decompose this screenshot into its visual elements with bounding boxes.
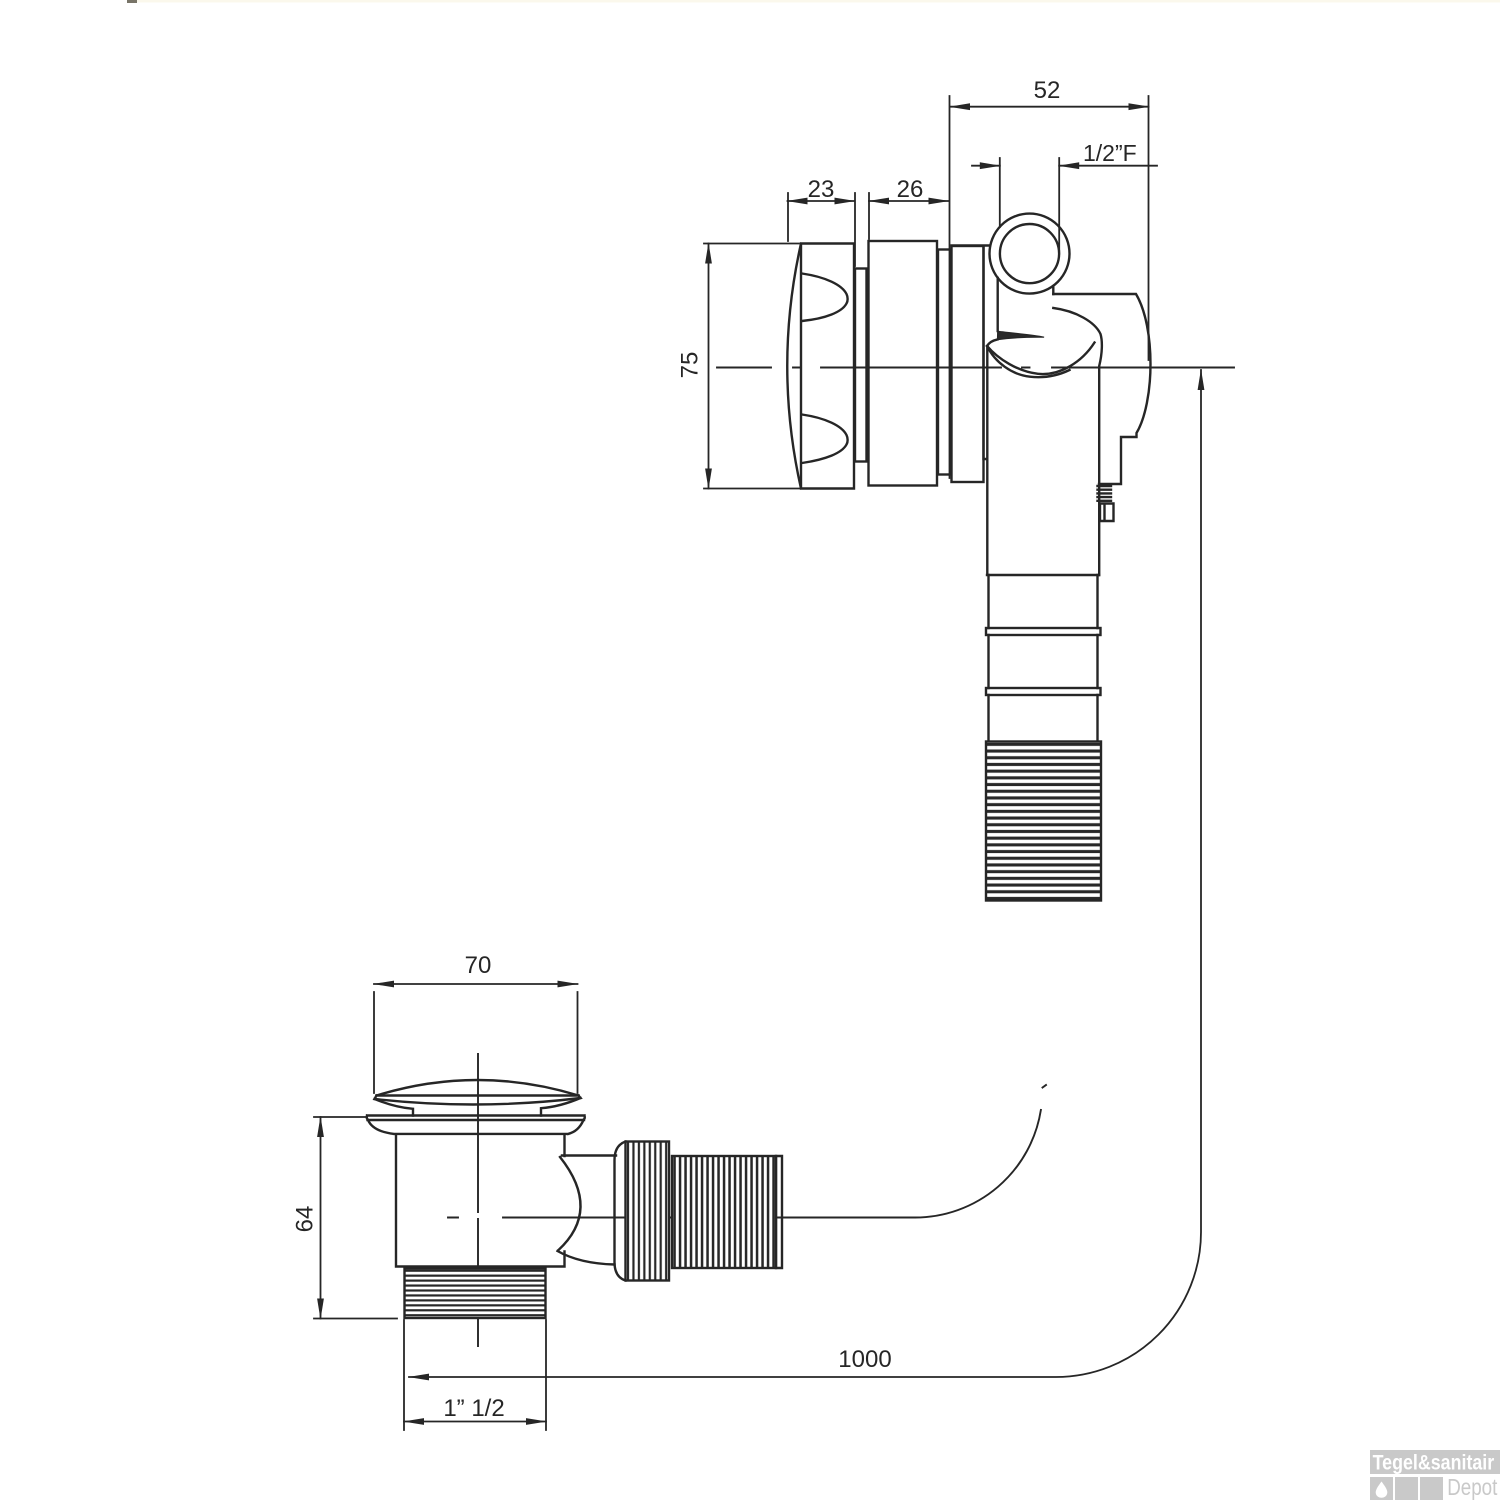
svg-text:1/2”F: 1/2”F [1083, 140, 1137, 166]
svg-text:1000: 1000 [838, 1346, 891, 1373]
svg-text:23: 23 [808, 176, 835, 203]
svg-text:70: 70 [465, 952, 492, 979]
svg-text:1” 1/2: 1” 1/2 [443, 1395, 504, 1422]
svg-text:Tegel&sanitair: Tegel&sanitair [1373, 1451, 1495, 1475]
svg-text:Depot: Depot [1447, 1474, 1497, 1500]
svg-text:64: 64 [292, 1206, 319, 1233]
svg-text:52: 52 [1034, 77, 1061, 104]
svg-text:26: 26 [897, 176, 924, 203]
svg-text:75: 75 [677, 352, 704, 379]
